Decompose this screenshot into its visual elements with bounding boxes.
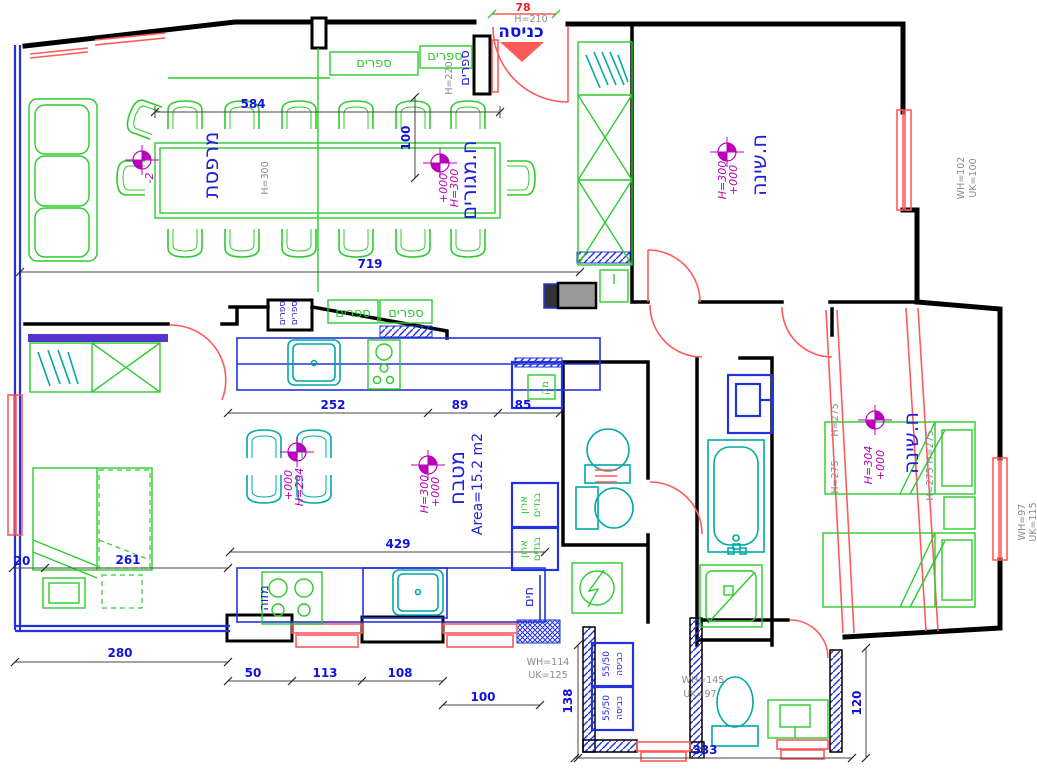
wc-door	[650, 482, 702, 534]
room-left-door	[170, 325, 226, 400]
dim-113: 113	[312, 666, 337, 680]
wall-pier	[362, 617, 443, 642]
bedroom1-label: ח.שינה	[747, 134, 771, 196]
shower	[700, 565, 762, 627]
balcony-level: -2	[143, 173, 156, 184]
door-header-beam	[28, 334, 168, 342]
bedroom2-door	[782, 307, 832, 357]
kitchen-sink-top	[288, 340, 340, 385]
closet-label-bottom: בגדים	[532, 537, 543, 561]
note-h220: H=220	[444, 61, 455, 94]
dim-100: 100	[399, 125, 413, 150]
dim-100b: 100	[470, 690, 495, 704]
kitchen-height: H=300	[418, 475, 431, 513]
kitchen-shelf-label: ספרים	[388, 306, 423, 321]
wall-stub	[312, 18, 326, 48]
laundry-box	[592, 687, 633, 730]
entrance-arrow-icon	[500, 42, 544, 62]
shaft	[517, 620, 560, 643]
bedroom1-window	[897, 110, 903, 210]
living-height: H=300	[448, 169, 461, 207]
dim-261: 261	[115, 553, 140, 567]
kitchen-area-label: Area=15.2 m2	[470, 433, 486, 535]
laundry-size: 55/50	[602, 695, 612, 721]
note-uk125: UK=125	[528, 670, 567, 681]
toilet-1	[585, 429, 630, 483]
niche-label: ספרים	[290, 301, 300, 326]
floor-plan-drawing: 78 H=210 584 100 719 252 89 85 429 20 26…	[0, 0, 1037, 770]
niche-label: ספרים	[278, 301, 288, 326]
hall-bath-door	[650, 305, 702, 357]
note-h275: H=275	[925, 430, 936, 463]
dim-108: 108	[387, 666, 412, 680]
heater-label: חים	[522, 587, 537, 607]
pantry-label: מזוה	[257, 585, 272, 610]
wc2-door	[790, 620, 828, 658]
dim-50: 50	[245, 666, 262, 680]
dim-85: 85	[515, 398, 532, 412]
electrical-cabinet	[544, 270, 628, 308]
bath-sink	[728, 375, 772, 433]
balcony-label: מרפסת	[199, 132, 223, 199]
laundry-box	[592, 643, 633, 686]
note-uk100: UK=100	[968, 158, 979, 197]
wardrobe-top-middle	[578, 42, 632, 265]
bedroom2-window	[993, 458, 999, 560]
laundry-label: כביסה	[615, 696, 625, 720]
dim-719: 719	[357, 257, 382, 271]
windows	[8, 33, 1007, 761]
toilet-2	[576, 487, 633, 529]
note-wh102: WH=102	[956, 157, 967, 200]
closet-label-bottom: בגדים	[532, 493, 543, 517]
dim-429: 429	[385, 537, 410, 551]
laundry-label: כביסה	[615, 652, 625, 676]
shelf-label: ספרים	[356, 56, 391, 71]
dim-584: 584	[240, 97, 265, 111]
laundry-size: 55/50	[602, 651, 612, 677]
bedroom2-label: ח.שינה	[899, 412, 923, 474]
note-h275: H=275	[830, 460, 841, 493]
floor-plan-canvas: 78 H=210 584 100 719 252 89 85 429 20 26…	[0, 0, 1037, 770]
note-h300: H=300	[260, 161, 271, 194]
note-h275: H=275	[830, 403, 841, 436]
entrance-label: כניסה	[498, 22, 544, 42]
bed-left-room	[33, 468, 152, 608]
bedroom2-level: +000	[874, 450, 887, 480]
dim-280: 280	[107, 646, 132, 660]
kitchen-shelf-label: ספרים	[335, 306, 370, 321]
dim-78: 78	[515, 1, 530, 14]
bedroom1-height: H=300	[716, 161, 729, 199]
shelf-label: ספרים	[427, 49, 462, 64]
dim-252: 252	[320, 398, 345, 412]
sofa	[29, 99, 97, 261]
kitchen-label: מטבח	[445, 451, 469, 505]
vanity-bottom-wc	[768, 700, 828, 738]
note-wh97: WH=97	[1017, 504, 1028, 541]
dimensions: 78 H=210 584 100 719 252 89 85 429 20 26…	[9, 1, 870, 762]
dim-120: 120	[850, 690, 864, 715]
closet-label-top: ארון	[519, 496, 530, 514]
note-wh145: WH=145	[682, 675, 725, 686]
kitchen-sink-bottom	[393, 570, 443, 615]
dim-20: 20	[14, 554, 31, 568]
table-height: H=294	[293, 468, 306, 506]
bathtub	[708, 440, 764, 554]
closet-label-top: ארון	[519, 540, 530, 558]
nightstand	[944, 497, 975, 529]
closet-left-room	[30, 343, 160, 392]
fridge-label: מק	[540, 381, 551, 395]
note-h275: H=275	[925, 467, 936, 500]
entry-jamb	[474, 36, 490, 94]
electric-niche	[572, 563, 622, 613]
dim-333: 333	[692, 743, 717, 757]
note-uk115: UK=115	[1028, 502, 1037, 541]
bedroom1-door	[648, 250, 700, 302]
note-wh114: WH=114	[527, 657, 570, 668]
dim-89: 89	[452, 398, 469, 412]
toilet-bottom	[712, 677, 758, 746]
note-uk97: UK=97	[683, 689, 716, 700]
left-window	[8, 395, 14, 535]
dim-138: 138	[561, 688, 575, 713]
bedroom2-height: H=304	[862, 446, 875, 484]
